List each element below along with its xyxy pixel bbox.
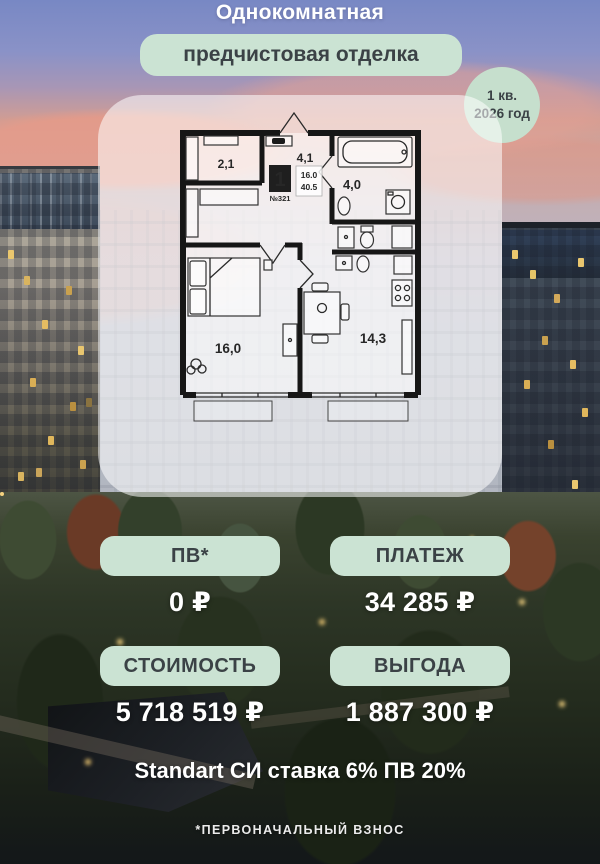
finish-type-badge: предчистовая отделка bbox=[140, 34, 462, 76]
bathtub bbox=[338, 137, 412, 167]
offer-monthly-payment-label: ПЛАТЕЖ bbox=[330, 536, 510, 576]
room-label-hallway: 2,1 bbox=[218, 157, 235, 171]
room-label-bathroom: 4,0 bbox=[343, 177, 361, 192]
apartment-number: №321 bbox=[270, 194, 291, 203]
floorplan-card: 1 №321 16.0 40.5 2,1 4,1 4,0 16,0 14,3 bbox=[98, 95, 502, 497]
promo-poster: Однокомнатная предчистовая отделка 1 кв.… bbox=[0, 0, 600, 864]
offer-benefit-label: ВЫГОДА bbox=[330, 646, 510, 686]
delivery-quarter: 1 кв. bbox=[487, 87, 517, 105]
offer-monthly-payment: ПЛАТЕЖ 34 285 ₽ bbox=[330, 536, 510, 618]
park-scene bbox=[0, 492, 600, 864]
lit-windows-left bbox=[8, 250, 14, 259]
downpayment-footnote: *ПЕРВОНАЧАЛЬНЫЙ ВЗНОС bbox=[0, 823, 600, 837]
living-area: 16.0 bbox=[301, 170, 318, 180]
room-label-kitchen: 14,3 bbox=[360, 331, 387, 346]
washing-machine bbox=[386, 190, 410, 214]
hall-shelf bbox=[266, 136, 292, 146]
total-area: 40.5 bbox=[301, 182, 318, 192]
dresser bbox=[283, 324, 297, 356]
offer-benefit: ВЫГОДА 1 887 300 ₽ bbox=[330, 646, 510, 728]
offer-downpayment: ПВ* 0 ₽ bbox=[100, 536, 280, 618]
bathroom-sink bbox=[338, 197, 350, 215]
room-label-hall: 4,1 bbox=[297, 151, 314, 165]
lit-windows-right bbox=[512, 250, 518, 259]
offer-price: СТОИМОСТЬ 5 718 519 ₽ bbox=[100, 646, 280, 728]
park-lamps bbox=[0, 492, 4, 496]
offer-benefit-value: 1 887 300 ₽ bbox=[330, 697, 510, 728]
offer-downpayment-label: ПВ* bbox=[100, 536, 280, 576]
balconies bbox=[194, 401, 408, 421]
tree-clusters bbox=[0, 492, 600, 864]
background-building-left bbox=[0, 166, 100, 531]
bed bbox=[188, 258, 272, 316]
offer-price-value: 5 718 519 ₽ bbox=[100, 697, 280, 728]
floorplan-svg: 1 №321 16.0 40.5 2,1 4,1 4,0 16,0 14,3 bbox=[180, 110, 425, 425]
page-title: Однокомнатная bbox=[0, 1, 600, 25]
building-window-grid bbox=[0, 169, 100, 531]
room-label-bedroom: 16,0 bbox=[215, 341, 241, 356]
offer-monthly-payment-value: 34 285 ₽ bbox=[330, 587, 510, 618]
entrance-door-swing bbox=[280, 113, 308, 133]
offer-downpayment-value: 0 ₽ bbox=[100, 587, 280, 618]
rooms-count: 1 bbox=[274, 169, 285, 191]
offer-price-label: СТОИМОСТЬ bbox=[100, 646, 280, 686]
mortgage-program-line: Standart СИ ставка 6% ПВ 20% bbox=[0, 758, 600, 784]
